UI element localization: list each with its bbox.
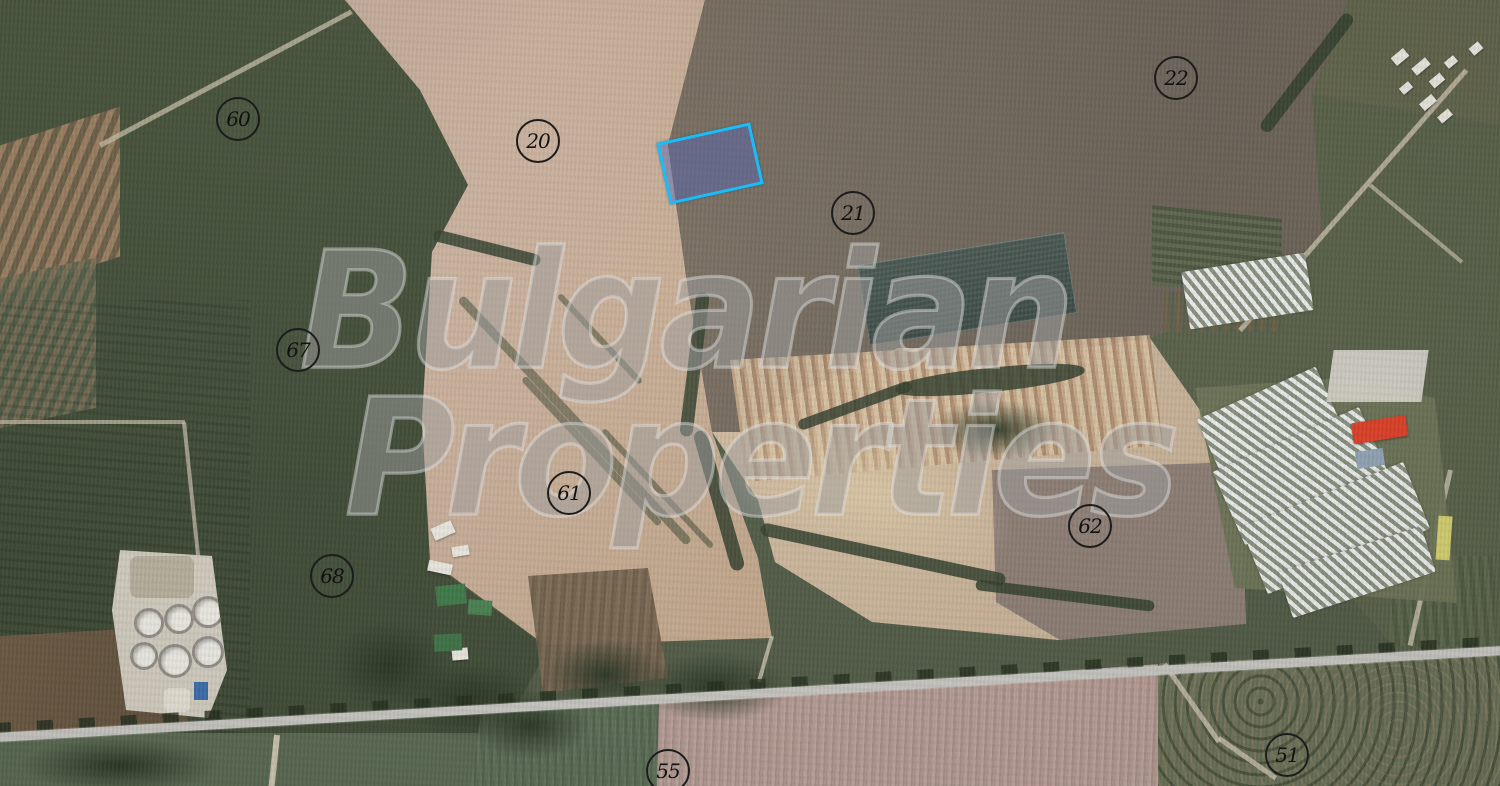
parcel-label-20: 20 bbox=[516, 119, 560, 163]
parcel-label-67: 67 bbox=[276, 328, 320, 372]
parcel-label-21: 21 bbox=[831, 191, 875, 235]
parcel-label-55: 55 bbox=[646, 749, 690, 786]
parcel-label-62: 62 bbox=[1068, 504, 1112, 548]
parcel-label-61: 61 bbox=[547, 471, 591, 515]
satellite-map[interactable]: Bulgarian Properties 6020222167616862555… bbox=[0, 0, 1500, 786]
parcel-label-60: 60 bbox=[216, 97, 260, 141]
parcel-label-22: 22 bbox=[1154, 56, 1198, 100]
parcel-label-68: 68 bbox=[310, 554, 354, 598]
parcel-label-51: 51 bbox=[1265, 733, 1309, 777]
parcel-labels: 60202221676168625551 bbox=[0, 0, 1500, 786]
